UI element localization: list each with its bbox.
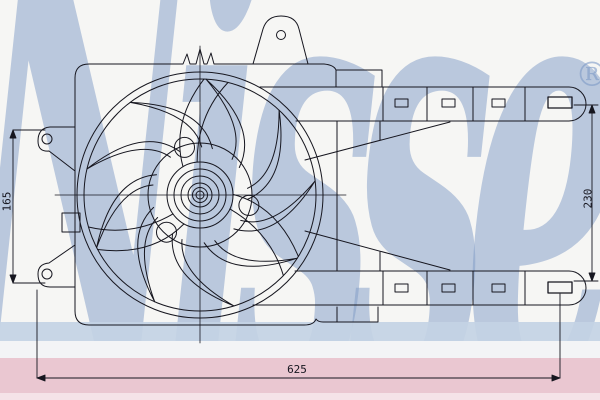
support-braces (305, 122, 450, 271)
product-image-canvas: Nissens ® (0, 0, 600, 400)
mounting-rail-top (260, 87, 586, 121)
dimension-label-165: 165 (2, 190, 13, 214)
dimension-label-625: 625 (277, 364, 317, 375)
dimension-165 (10, 130, 45, 283)
cooling-fan-blades (87, 79, 315, 306)
dimension-label-230: 230 (583, 187, 594, 211)
mounting-rail-bottom (253, 271, 586, 305)
technical-drawing (0, 0, 600, 400)
